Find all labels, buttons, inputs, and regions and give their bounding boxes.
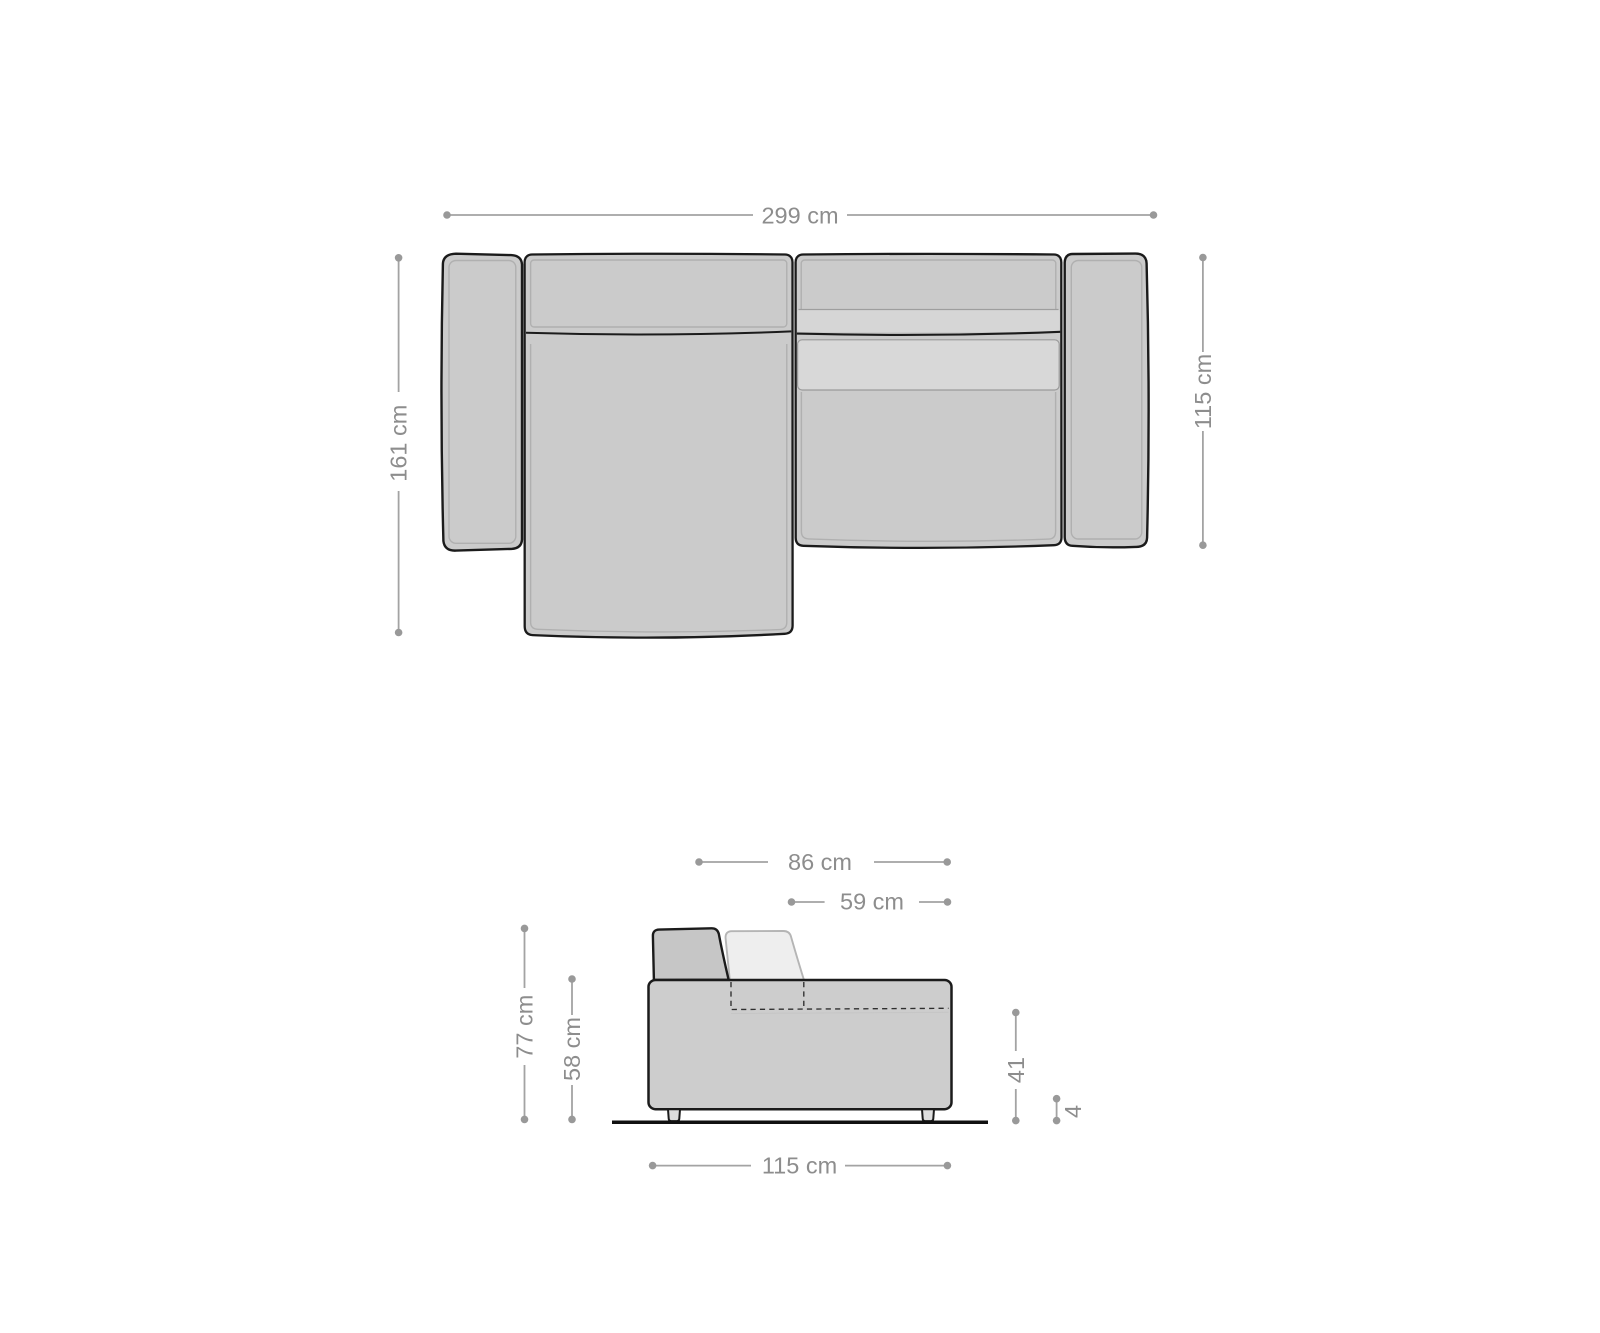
svg-text:86 cm: 86 cm — [788, 849, 852, 875]
svg-text:77 cm: 77 cm — [512, 995, 538, 1059]
svg-text:41: 41 — [1003, 1057, 1029, 1083]
svg-text:59 cm: 59 cm — [840, 889, 904, 915]
svg-text:58 cm: 58 cm — [559, 1017, 585, 1081]
svg-text:161 cm: 161 cm — [386, 405, 412, 482]
svg-text:115 cm: 115 cm — [1190, 354, 1216, 429]
svg-text:4: 4 — [1060, 1105, 1086, 1118]
svg-text:299 cm: 299 cm — [761, 203, 838, 229]
svg-text:115 cm: 115 cm — [762, 1153, 837, 1179]
